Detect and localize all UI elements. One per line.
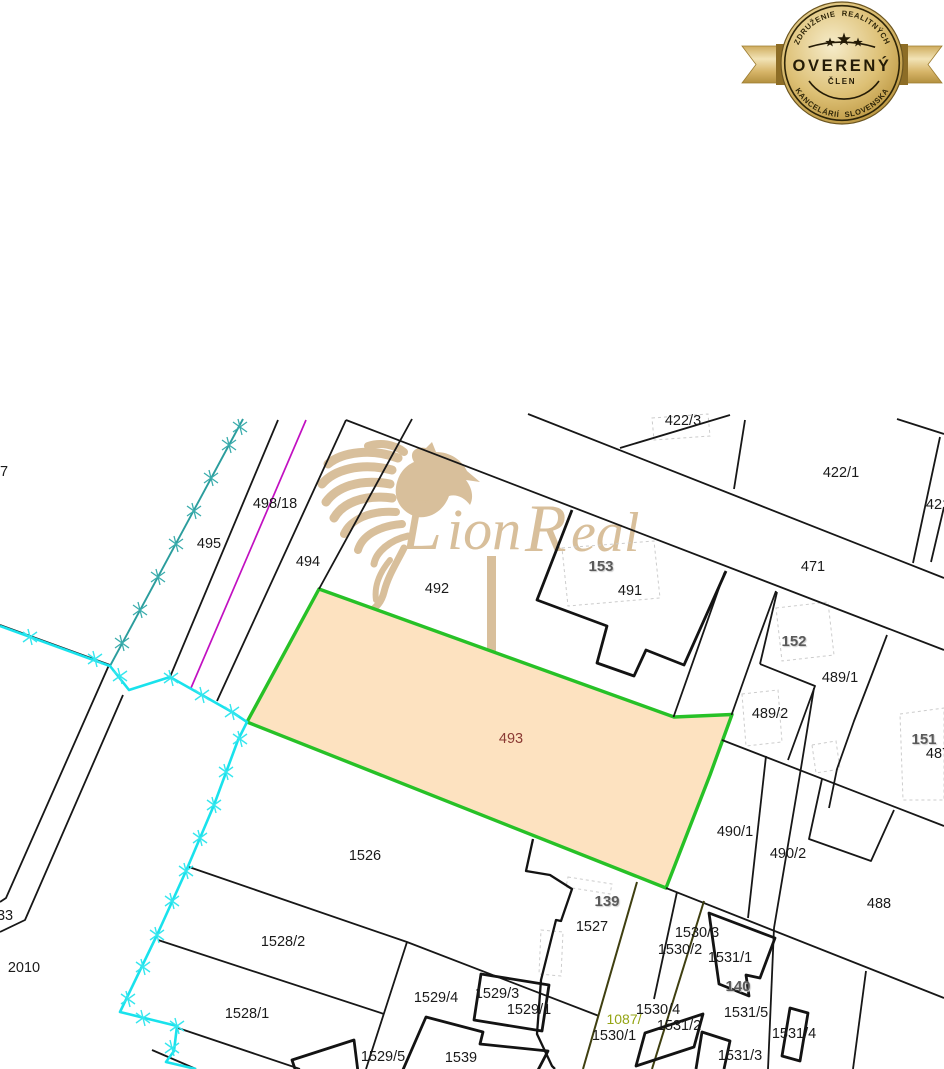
svg-text:OVERENÝ: OVERENÝ — [793, 56, 892, 75]
svg-text:422/1: 422/1 — [823, 465, 859, 481]
svg-text:1531/5: 1531/5 — [724, 1005, 768, 1021]
svg-text:1528/2: 1528/2 — [261, 934, 305, 950]
svg-text:1530/2: 1530/2 — [658, 942, 702, 958]
svg-text:ion: ion — [447, 497, 521, 562]
svg-text:490/1: 490/1 — [717, 824, 753, 840]
svg-text:1531/3: 1531/3 — [718, 1048, 762, 1064]
svg-text:498/18: 498/18 — [253, 496, 297, 512]
svg-text:1529/1: 1529/1 — [507, 1002, 551, 1018]
svg-text:1531/2: 1531/2 — [657, 1018, 701, 1034]
svg-text:1529/5: 1529/5 — [361, 1049, 405, 1065]
svg-text:33: 33 — [0, 908, 13, 924]
svg-text:1528/1: 1528/1 — [225, 1006, 269, 1022]
svg-text:489/1: 489/1 — [822, 670, 858, 686]
svg-text:L: L — [400, 484, 442, 566]
svg-text:1530/4: 1530/4 — [636, 1002, 680, 1018]
svg-text:7: 7 — [0, 464, 8, 480]
svg-text:493: 493 — [499, 731, 523, 747]
svg-text:152: 152 — [781, 633, 806, 650]
svg-text:151: 151 — [911, 731, 936, 748]
svg-text:1526: 1526 — [349, 848, 381, 864]
svg-text:487: 487 — [926, 746, 944, 762]
svg-text:488: 488 — [867, 896, 891, 912]
svg-text:494: 494 — [296, 554, 320, 570]
svg-text:R: R — [524, 490, 567, 566]
svg-text:1529/3: 1529/3 — [475, 986, 519, 1002]
svg-text:421: 421 — [926, 497, 944, 513]
svg-text:1527: 1527 — [576, 919, 608, 935]
svg-text:2010: 2010 — [8, 960, 40, 976]
svg-text:140: 140 — [725, 978, 750, 995]
svg-text:1087/: 1087/ — [606, 1011, 641, 1027]
svg-text:1529/4: 1529/4 — [414, 990, 458, 1006]
svg-text:153: 153 — [588, 558, 613, 575]
svg-text:495: 495 — [197, 536, 221, 552]
svg-text:492: 492 — [425, 581, 449, 597]
svg-text:1530/1: 1530/1 — [592, 1028, 636, 1044]
svg-text:422/3: 422/3 — [665, 413, 701, 429]
svg-text:1531/4: 1531/4 — [772, 1026, 816, 1042]
svg-text:490/2: 490/2 — [770, 846, 806, 862]
svg-text:471: 471 — [801, 559, 825, 575]
svg-text:1539: 1539 — [445, 1050, 477, 1066]
svg-text:1531/1: 1531/1 — [708, 950, 752, 966]
svg-text:491: 491 — [618, 583, 642, 599]
svg-text:ČLEN: ČLEN — [828, 77, 856, 86]
svg-text:139: 139 — [594, 893, 619, 910]
svg-text:489/2: 489/2 — [752, 706, 788, 722]
svg-text:1530/3: 1530/3 — [675, 925, 719, 941]
